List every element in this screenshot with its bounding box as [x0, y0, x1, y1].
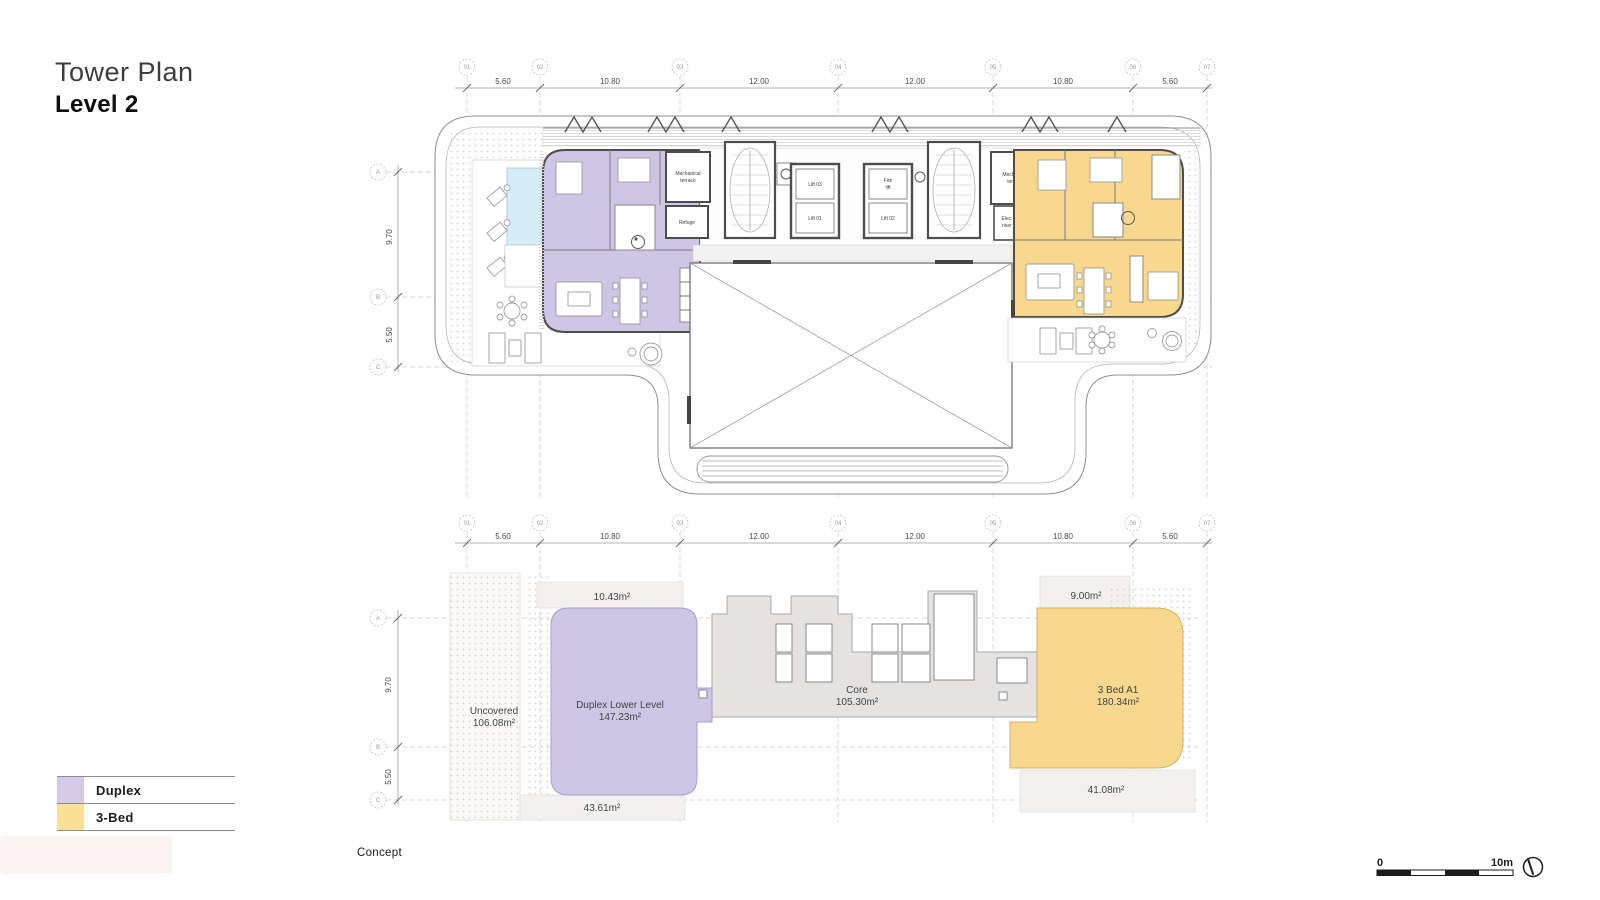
duplex-zone-area: 147.23m² [599, 712, 642, 723]
terrace-right [1008, 318, 1186, 362]
terrace-area-br: 41.08m² [1088, 785, 1125, 796]
svg-text:terrace: terrace [680, 178, 696, 184]
dim-label: 5.50 [385, 327, 394, 343]
uncovered-area: 106.08m² [473, 718, 516, 729]
dim-label: 9.70 [384, 677, 393, 693]
core-zone: Core 105.30m² [712, 591, 1037, 717]
hatch-strip [524, 576, 550, 820]
lift-01-label: Lift 01 [808, 216, 822, 222]
dim-label: 12.00 [905, 77, 926, 86]
core-top-plan: Mechanical terrace Refuge Lift 03 Lift 0… [666, 142, 1039, 261]
mech-terrace-left-room: Mechanical terrace [666, 152, 710, 202]
terrace-area-tl: 10.43m² [594, 592, 631, 603]
uncovered-name: Uncovered [470, 706, 518, 717]
dim-label: 12.00 [905, 532, 926, 541]
dim-label: 9.70 [385, 229, 394, 245]
legend-item-duplex: Duplex [57, 776, 235, 804]
dim-label: 5.60 [1162, 532, 1178, 541]
wheelchair-icon [634, 237, 637, 240]
core-area: 105.30m² [836, 697, 879, 708]
three-bed-unit [1014, 150, 1183, 317]
stair-left [725, 142, 775, 238]
bed [618, 158, 650, 182]
grid-row-label: B [376, 295, 380, 301]
grid-row-label: B [376, 745, 380, 751]
hatch-right-margin [1184, 128, 1200, 346]
drawing-sheet: 01 02 03 04 05 06 07 5.60 10.80 12.00 12… [0, 0, 1600, 900]
planter [1148, 329, 1157, 338]
dim-label: 5.60 [495, 77, 511, 86]
grid-col-label: 02 [537, 65, 544, 71]
legend-label: Duplex [96, 783, 141, 798]
bathroom [1093, 203, 1123, 237]
title-block: Tower Plan Level 2 [55, 57, 194, 119]
grid-col-label: 07 [1204, 521, 1211, 527]
north-arrow-icon [1524, 858, 1543, 877]
svg-text:Mechanical: Mechanical [675, 171, 700, 177]
fire-lift-label: Fire [884, 178, 893, 184]
grid-row-label: C [376, 798, 381, 804]
bed [1148, 272, 1178, 300]
svg-text:Refuge: Refuge [679, 220, 695, 226]
grid-col-label: 04 [835, 65, 842, 71]
bed [556, 162, 582, 194]
uncovered-zone [450, 573, 550, 820]
legend-item-3bed: 3-Bed [57, 804, 235, 831]
grid-col-label: 05 [990, 65, 997, 71]
dim-label: 5.50 [384, 769, 393, 785]
three-bed-zone-name: 3 Bed A1 [1098, 685, 1139, 696]
legend: Duplex 3-Bed [57, 776, 235, 831]
grid-col-label: 07 [1204, 65, 1211, 71]
top-louvre-band [543, 128, 1200, 146]
dim-label: 10.80 [600, 77, 621, 86]
dim-label: 10.80 [1053, 532, 1074, 541]
watermark-block [0, 836, 172, 874]
grid-col-label: 05 [990, 521, 997, 527]
grid-col-label: 06 [1130, 521, 1137, 527]
terrace-area-tr: 9.00m² [1070, 591, 1102, 602]
dim-label: 12.00 [749, 532, 770, 541]
grid-row-label: A [376, 616, 380, 622]
lift-bank-left: Lift 03 Lift 01 [791, 164, 839, 238]
lift-bank-right: Fire lift Lift 02 [864, 164, 912, 238]
dim-label: 12.00 [749, 77, 770, 86]
duplex-zone: Duplex Lower Level 147.23m² [551, 608, 712, 795]
grid-col-label: 06 [1130, 65, 1137, 71]
grid-row-label: C [376, 365, 381, 371]
scale-end-label: 10m [1491, 857, 1513, 869]
floor-plan-svg: 01 02 03 04 05 06 07 5.60 10.80 12.00 12… [0, 0, 1600, 900]
bed [1038, 160, 1066, 190]
louvre-strip [697, 456, 1008, 482]
central-void [689, 262, 1013, 448]
grid-row-label: A [376, 170, 380, 176]
dim-label: 10.80 [600, 532, 621, 541]
svg-text:riser: riser [1002, 223, 1012, 229]
duplex-facade-louvres [539, 152, 544, 330]
three-bed-color-swatch [57, 804, 84, 830]
terrace-area-bl: 43.61m² [584, 803, 621, 814]
grid-col-label: 02 [537, 521, 544, 527]
stair-right [928, 142, 980, 238]
grid-col-label: 01 [464, 65, 471, 71]
core-corridor [693, 245, 1012, 261]
grid-col-label: 04 [835, 521, 842, 527]
refuge-room: Refuge [666, 206, 708, 238]
duplex-zone-name: Duplex Lower Level [576, 700, 664, 711]
legend-label: 3-Bed [96, 810, 134, 825]
grid-col-label: 01 [464, 521, 471, 527]
sheet-title: Tower Plan [55, 57, 194, 88]
bathroom [1152, 155, 1180, 199]
dim-label: 5.60 [495, 532, 511, 541]
duplex-bathroom [615, 205, 655, 250]
fire-lift-label: lift [886, 185, 892, 191]
grid-col-label: 03 [677, 521, 684, 527]
core-name: Core [846, 685, 868, 696]
svg-text:Elec.: Elec. [1001, 216, 1012, 222]
scale-bar: 0 10m [1377, 857, 1513, 876]
bed [1090, 158, 1122, 182]
jacuzzi [1163, 332, 1182, 351]
stage-label: Concept [357, 847, 402, 859]
lift-03-label: Lift 03 [808, 182, 822, 188]
sheet-subtitle: Level 2 [55, 91, 194, 119]
scale-start-label: 0 [1377, 857, 1383, 869]
dim-label: 5.60 [1162, 77, 1178, 86]
lower-diagram: Core 105.30m² Duplex Lower Level 147.23m… [450, 573, 1195, 820]
dim-label: 10.80 [1053, 77, 1074, 86]
three-bed-zone-area: 180.34m² [1097, 697, 1140, 708]
lift-02-label: Lift 02 [881, 216, 895, 222]
grid-col-label: 03 [677, 65, 684, 71]
duplex-color-swatch [57, 777, 84, 803]
